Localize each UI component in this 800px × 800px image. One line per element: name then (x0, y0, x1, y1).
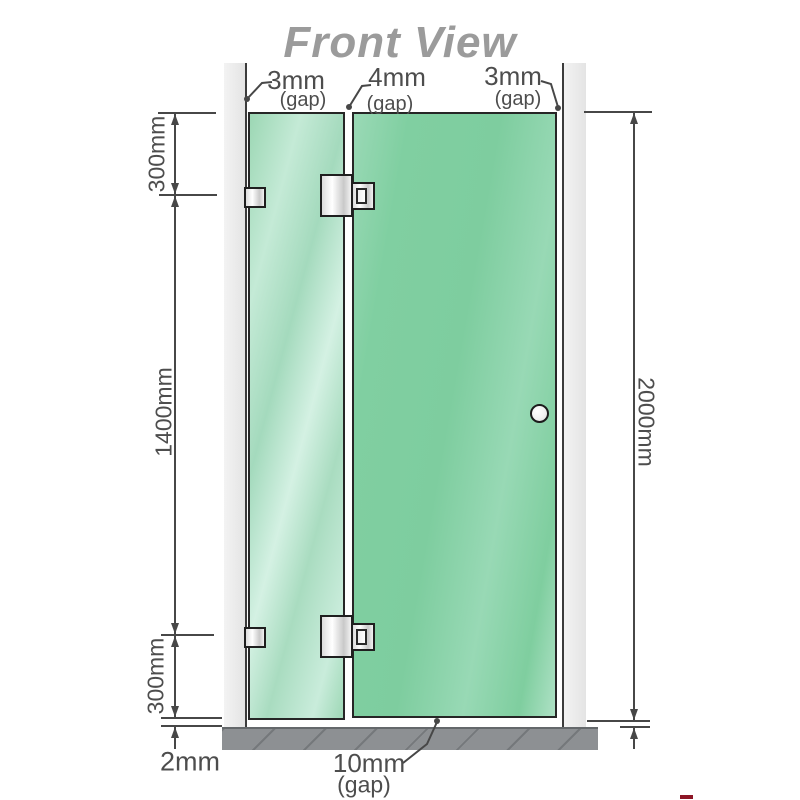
hinge-top-left-plate (320, 174, 353, 217)
hinge-bottom-left-plate (320, 615, 353, 658)
gap-label-middle-value: 4mm (368, 64, 426, 90)
gap-label-left-note: (gap) (280, 90, 327, 110)
gap-label-right-note: (gap) (495, 89, 542, 109)
gap-label-middle-note: (gap) (367, 94, 414, 114)
dim-left-middle-label: 1400mm (153, 367, 176, 456)
dim-left-bottom-label: 300mm (145, 638, 168, 715)
diagram-title: Front View (283, 18, 516, 68)
dim-floor-gap-note: (gap) (337, 774, 391, 797)
wall-bracket-top (244, 187, 266, 208)
watermark-fragment (680, 795, 693, 799)
front-view-diagram: Front View (0, 0, 800, 800)
dim-right-height-label: 2000mm (635, 377, 658, 466)
door-handle-knob (530, 404, 549, 423)
dim-left-top-label: 300mm (146, 116, 169, 193)
gap-label-right-value: 3mm (484, 63, 542, 89)
dim-base-offset-label: 2mm (160, 749, 220, 776)
door-glass-panel (352, 112, 557, 718)
hinge-bottom-knuckle (356, 629, 367, 645)
hinge-top-knuckle (356, 188, 367, 204)
wall-bracket-bottom (244, 627, 266, 648)
right-wall (562, 63, 586, 727)
shower-base (222, 727, 598, 750)
